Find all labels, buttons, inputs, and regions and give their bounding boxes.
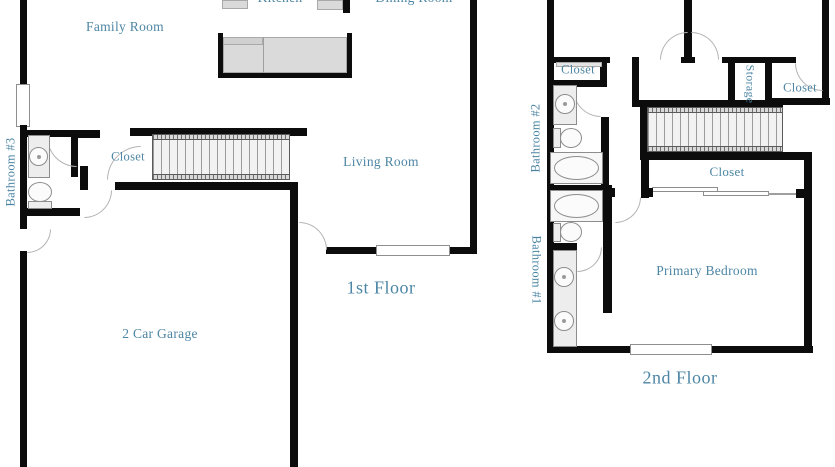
wall: [640, 100, 647, 160]
bathroom1-toilet-bowl: [560, 222, 582, 242]
bedroom-door-arc: [691, 32, 719, 60]
stair-rail: [648, 108, 782, 113]
closet-top-left-label: Closet: [561, 63, 595, 78]
primary-bedroom-label: Primary Bedroom: [656, 263, 758, 279]
wall: [765, 57, 772, 105]
wall: [823, 57, 829, 63]
wall: [632, 100, 783, 107]
bathroom2-tub-basin: [554, 156, 599, 180]
sliding-door-panel: [703, 191, 769, 196]
wall: [796, 189, 804, 198]
sliding-door-track: [768, 193, 798, 195]
wall: [710, 346, 813, 353]
staircase: [647, 107, 783, 152]
bathroom2-label: Bathroom #2: [529, 104, 544, 173]
window: [630, 344, 712, 355]
wall: [804, 152, 812, 353]
bedroom-door-arc: [660, 32, 688, 60]
bathroom1-label: Bathroom #1: [529, 236, 544, 305]
bathroom1-sink-drain: [562, 275, 566, 279]
wall: [603, 193, 612, 313]
primary-bedroom-door-arc: [615, 197, 641, 223]
bathroom2-sink-drain: [563, 102, 567, 106]
bathroom2-toilet-bowl: [560, 128, 582, 148]
closet-top-right-label: Closet: [783, 81, 817, 96]
wall: [603, 188, 615, 197]
wall: [822, 0, 829, 105]
second-floor-plan: Closet Storage Closet Closet Bathroom #2…: [0, 0, 835, 467]
wall: [547, 346, 632, 353]
walk-in-closet-label: Closet: [709, 164, 744, 180]
second-floor-title: 2nd Floor: [642, 368, 717, 389]
bathroom1-vanity: [553, 250, 577, 347]
storage-label: Storage: [743, 65, 758, 104]
bathroom1-door-arc: [577, 247, 602, 272]
bathroom1-tub-basin: [554, 194, 599, 218]
stair-rail: [648, 146, 782, 151]
bathroom2-door-arc: [573, 89, 601, 117]
wall: [641, 188, 653, 197]
floor-plan-canvas: Family Room Kitchen Dining Room Bathroom…: [0, 0, 835, 467]
bathroom1-sink-drain: [562, 319, 566, 323]
wall: [640, 152, 810, 160]
